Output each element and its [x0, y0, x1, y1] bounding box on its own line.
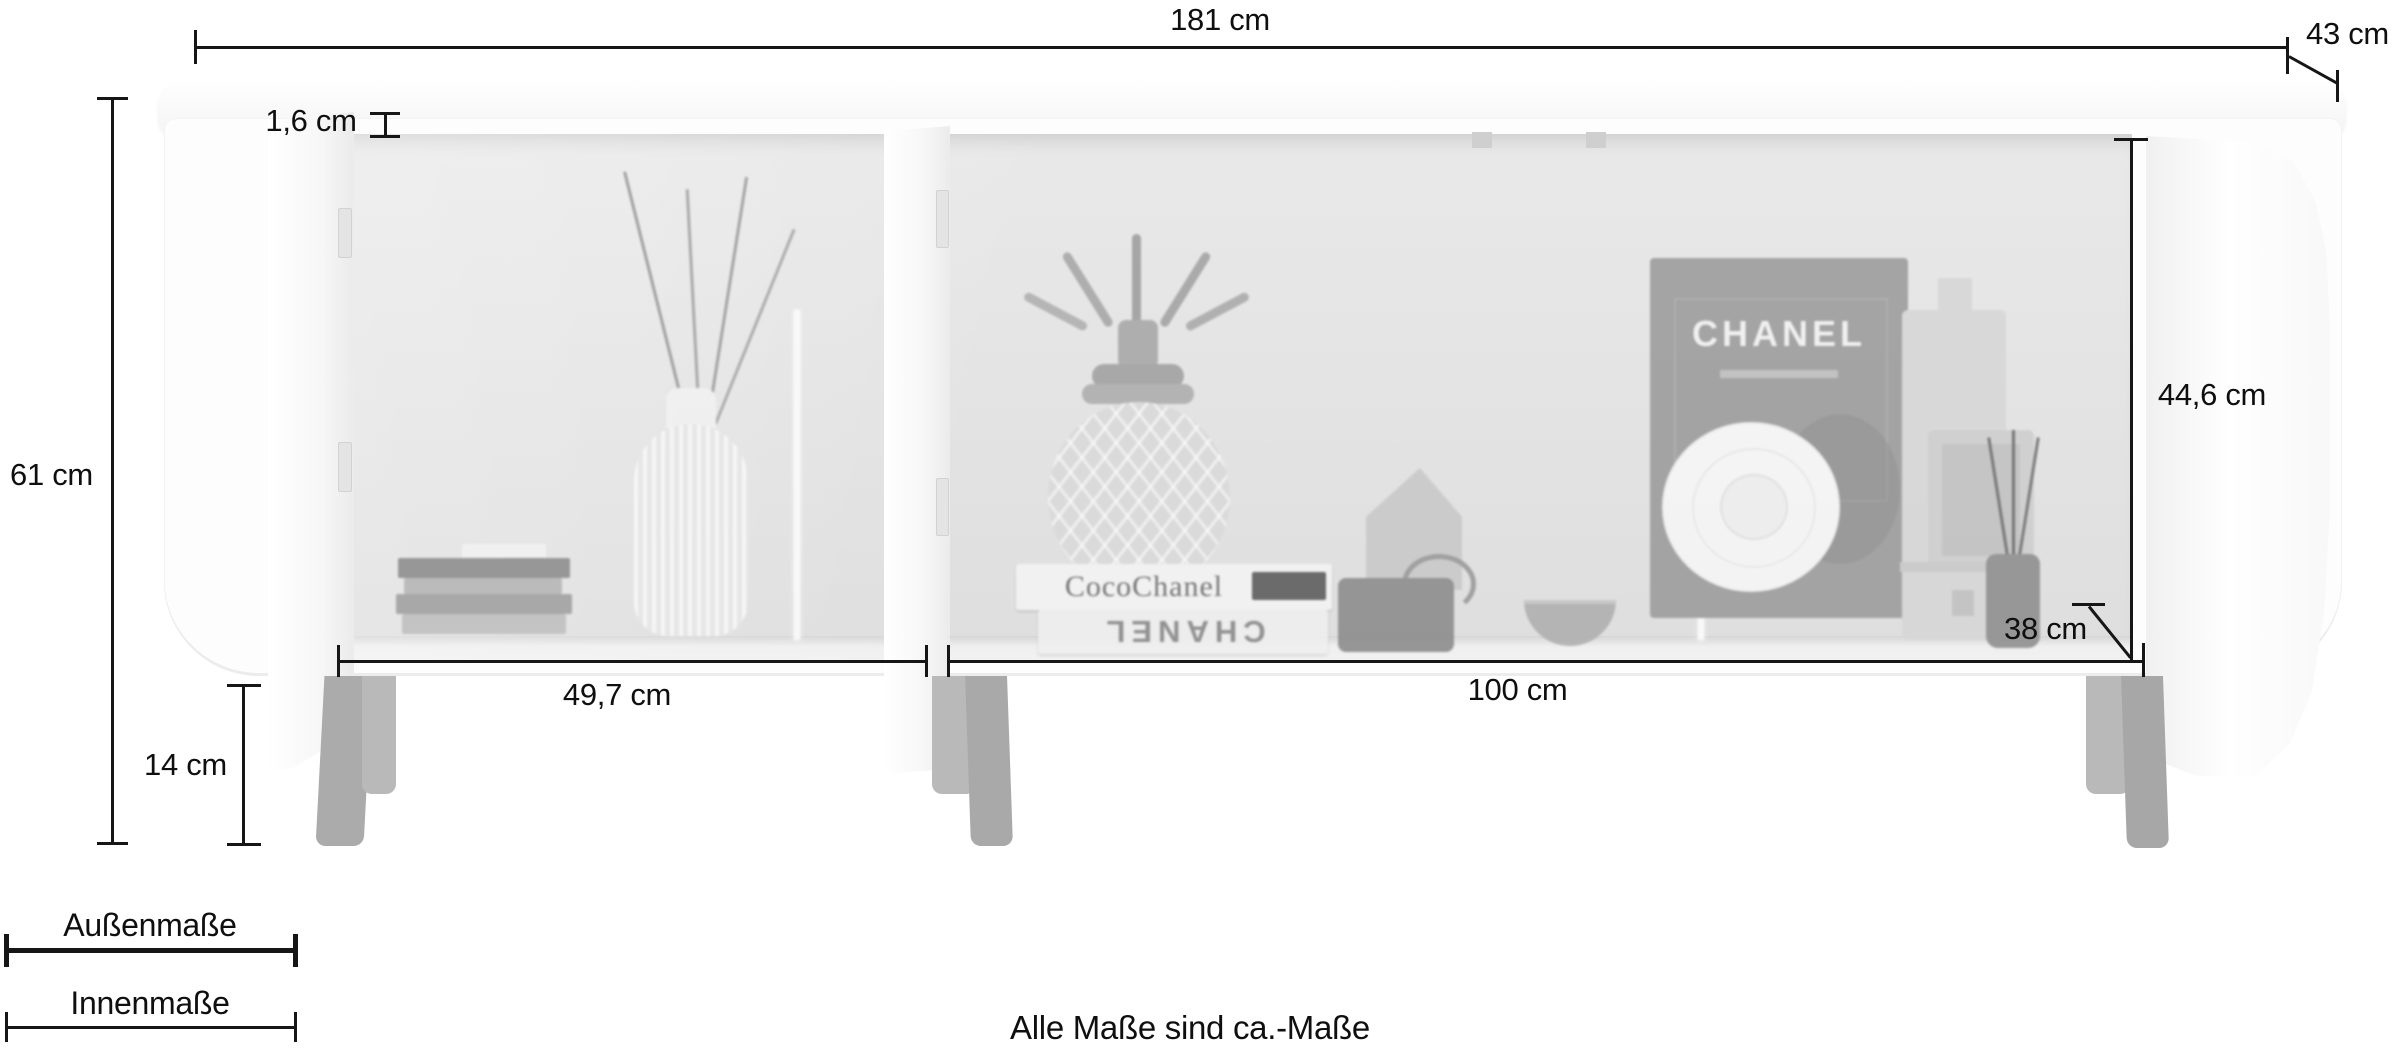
- tick: [337, 645, 340, 677]
- book: [396, 594, 572, 614]
- dimension-line: [948, 660, 2144, 663]
- tick: [194, 30, 197, 64]
- pineapple-collar: [1082, 384, 1194, 404]
- tick: [5, 1012, 8, 1042]
- tick: [97, 97, 128, 100]
- leg: [362, 676, 396, 794]
- dim-label-depth: 43 cm: [2306, 17, 2400, 51]
- branch: [706, 177, 748, 424]
- tick: [293, 934, 298, 967]
- dim-label-total-width: 181 cm: [1120, 3, 1320, 37]
- interior-decor: CocoChanel CHANEL CHANEL: [346, 134, 2132, 662]
- bowl: [1524, 600, 1616, 646]
- dimension-line: [195, 46, 2288, 49]
- book-title-upside-down: CHANEL: [1068, 614, 1298, 648]
- coffee-table-book-bottom: CHANEL: [1038, 610, 1328, 654]
- dimension-line: [242, 686, 245, 845]
- tick: [370, 135, 400, 138]
- easel-drawer: [1952, 590, 1974, 616]
- book-label-patch: [1252, 572, 1326, 600]
- legend-outer-line: [6, 948, 296, 953]
- camellia-flower: [1662, 422, 1840, 592]
- dimension-line: [338, 660, 928, 663]
- branch: [714, 229, 795, 425]
- pineapple-leaf: [1184, 291, 1250, 332]
- tick: [2336, 70, 2339, 102]
- petal: [1720, 474, 1788, 540]
- incense-stick: [2012, 430, 2015, 556]
- tick: [227, 843, 261, 846]
- door-hinge: [936, 478, 949, 536]
- branch: [623, 171, 689, 424]
- tick: [97, 842, 128, 845]
- dim-label-inner-height: 44,6 cm: [2143, 378, 2281, 412]
- cover-title: CHANEL: [1650, 314, 1908, 354]
- cover-subtitle-bar: [1720, 370, 1838, 378]
- vase: [634, 424, 748, 636]
- easel-notch: [1938, 278, 1972, 324]
- dim-label-inner-depth: 38 cm: [1993, 612, 2098, 646]
- dimension-line: [111, 98, 114, 845]
- door-right: [2146, 136, 2330, 776]
- legend-outer-label: Außenmaße: [40, 908, 260, 943]
- dimension-line: [384, 114, 387, 137]
- door-left: [268, 112, 354, 774]
- pineapple-leaf: [1132, 234, 1141, 326]
- diagram-canvas: CocoChanel CHANEL CHANEL: [0, 0, 2400, 1057]
- legend-inner-line: [6, 1026, 296, 1029]
- leg: [2121, 676, 2169, 848]
- book: [402, 614, 566, 634]
- dark-box: [1338, 578, 1454, 652]
- door-hinge: [338, 442, 352, 492]
- tick: [947, 645, 950, 677]
- candle: [794, 310, 800, 640]
- tick: [294, 1012, 297, 1042]
- coffee-table-book-top: CocoChanel: [1016, 564, 1332, 610]
- dim-label-top-thickness: 1,6 cm: [255, 104, 367, 138]
- book: [398, 558, 570, 578]
- vase-neck: [666, 388, 716, 428]
- chanel-book: CHANEL: [1650, 258, 1908, 618]
- door-hinge: [338, 208, 352, 258]
- dim-label-inner-width-left: 49,7 cm: [537, 678, 697, 712]
- legend-inner-label: Innenmaße: [40, 986, 260, 1021]
- tick: [925, 645, 928, 677]
- tick: [4, 934, 9, 967]
- footnote: Alle Maße sind ca.-Maße: [960, 1010, 1420, 1046]
- dim-label-total-height: 61 cm: [0, 458, 103, 492]
- book-stack: [396, 544, 572, 636]
- dimension-line: [2130, 139, 2133, 662]
- sideboard: CocoChanel CHANEL CHANEL: [0, 0, 2400, 1057]
- book-title: CocoChanel: [1034, 570, 1254, 603]
- tick: [2142, 643, 2145, 677]
- pineapple-leaf: [1023, 291, 1089, 332]
- dim-label-leg-height: 14 cm: [133, 748, 238, 782]
- door-hinge: [936, 190, 949, 248]
- dim-label-inner-width-right: 100 cm: [1435, 673, 1600, 707]
- leg: [965, 676, 1013, 846]
- pineapple-stem: [1118, 320, 1158, 368]
- book: [404, 578, 562, 594]
